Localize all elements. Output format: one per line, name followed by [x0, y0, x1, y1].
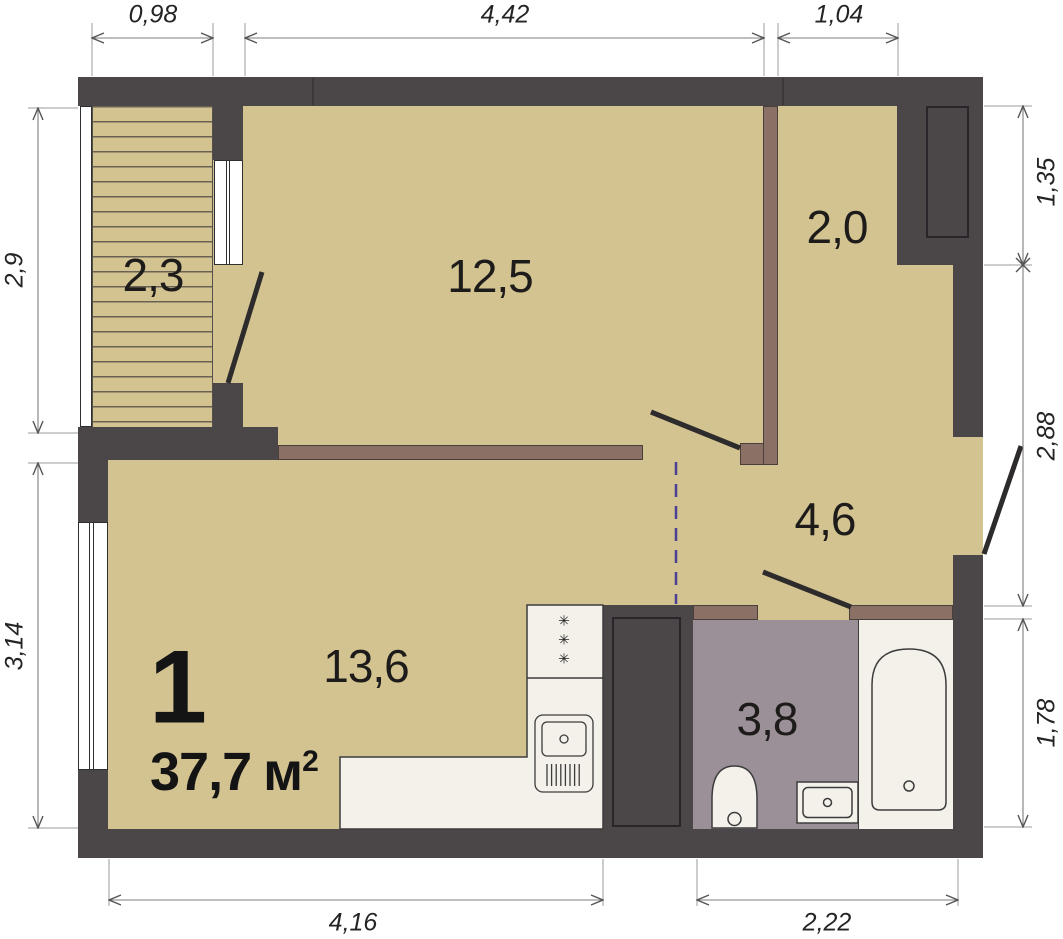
- bathtub: [872, 649, 946, 810]
- dim-left-balcony: 2,9: [1, 253, 30, 288]
- dim-left-kitchen: 3,14: [1, 622, 30, 671]
- washbasin: [797, 782, 858, 823]
- dim-top-living: 4,42: [481, 1, 530, 30]
- unit-total-area: 37,7м2: [150, 741, 318, 803]
- dim-right-niche: 1,35: [1033, 158, 1062, 207]
- room-label-wardrobe: 2,0: [807, 200, 868, 254]
- living-door-leaf: [651, 412, 740, 448]
- entrance-door-leaf: [984, 446, 1021, 554]
- dim-bottom-kitchen: 4,16: [329, 909, 378, 938]
- room-label-living: 12,5: [447, 249, 533, 303]
- area-unit: м: [263, 742, 302, 802]
- room-label-kitchen: 13,6: [323, 639, 409, 693]
- room-label-bathroom: 3,8: [737, 692, 798, 746]
- vent-shaft-kitchen: [613, 618, 680, 826]
- toilet: [712, 766, 757, 828]
- floor-plan: 2,3 12,5 2,0 4,6 13,6 3,8 ✳ ✳ ✳ 1 37,7м2…: [0, 0, 1063, 939]
- unit-number: 1: [149, 629, 207, 748]
- vent-shaft-wardrobe: [927, 107, 968, 237]
- door-leaves: [228, 272, 1021, 607]
- bathroom-door-leaf: [763, 572, 851, 607]
- area-value: 37,7: [150, 742, 251, 802]
- stove-burners-icon: ✳ ✳ ✳: [558, 612, 570, 669]
- dim-right-hall: 2,88: [1033, 412, 1062, 461]
- room-label-balcony: 2,3: [123, 248, 184, 302]
- dim-bottom-bathroom: 2,22: [803, 909, 852, 938]
- dim-top-wardrobe: 1,04: [815, 1, 864, 30]
- wall-joints: [313, 78, 783, 105]
- area-exponent: 2: [302, 745, 318, 778]
- balcony-door-leaf: [228, 272, 262, 383]
- dim-top-balcony: 0,98: [129, 1, 178, 30]
- dim-right-bathroom: 1,78: [1033, 699, 1062, 748]
- room-label-hall: 4,6: [795, 492, 856, 546]
